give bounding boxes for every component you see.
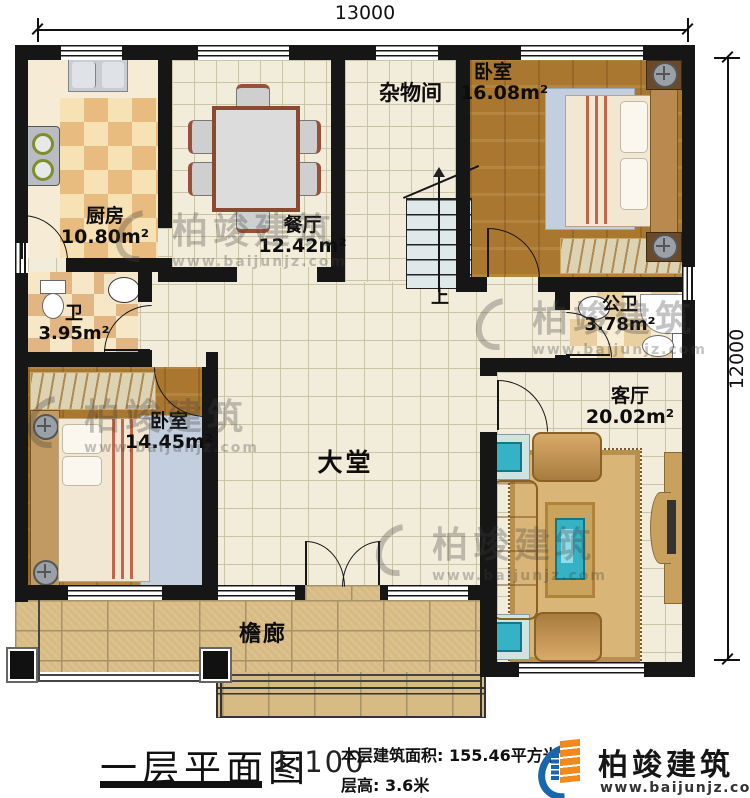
dimension-right-label: 12000 [726, 317, 748, 401]
pillow [62, 424, 102, 454]
company-logo-icon [540, 738, 592, 794]
floor-height-text: 层高: 3.6米 [341, 772, 429, 796]
window [519, 662, 644, 677]
wall [158, 267, 237, 282]
room-area: 3.95m² [18, 324, 130, 344]
porch-edge-bottom [38, 674, 480, 676]
wall [380, 585, 388, 600]
wall [480, 372, 497, 376]
lamp [652, 234, 678, 260]
wall [538, 277, 695, 292]
window [61, 45, 122, 60]
window [376, 45, 438, 60]
dimension-top-line [37, 29, 688, 31]
room-area: 3.78m² [558, 315, 682, 335]
room-area: 16.08m² [460, 83, 599, 104]
wall [480, 432, 497, 662]
bathroom-sink-basin [108, 277, 140, 303]
room-name: 公卫 [558, 295, 682, 315]
porch-column [203, 651, 228, 679]
wall [438, 45, 521, 60]
window [198, 45, 289, 60]
window [218, 585, 295, 600]
stove [24, 126, 60, 186]
window [521, 45, 643, 60]
lamp [652, 62, 678, 88]
room-label-kitchen: 厨房 10.80m² [40, 206, 170, 249]
room-label-bedroom-tr: 卧室 16.08m² [452, 62, 599, 105]
living-door-leaf [497, 380, 499, 430]
window [68, 585, 162, 600]
porch-column [10, 651, 34, 679]
wall [470, 277, 487, 292]
room-name: 大堂 [288, 449, 403, 477]
wall [206, 352, 218, 367]
entrance-steps [216, 672, 486, 718]
window [682, 267, 695, 300]
bedroom-tr-bed-stripes [586, 96, 610, 224]
room-label-living: 客厅 20.02m² [558, 386, 702, 429]
room-name: 卧室 [103, 411, 235, 432]
room-label-bedroom-bl: 卧室 14.45m² [103, 411, 235, 454]
wall [66, 258, 172, 272]
wall [138, 272, 152, 302]
pillow [620, 158, 648, 210]
sofa-armchair [532, 432, 602, 482]
drawing-title-underline [100, 781, 262, 788]
room-name: 檐廊 [213, 623, 313, 648]
sofa-main [492, 480, 538, 620]
room-name: 客厅 [558, 386, 702, 407]
porch-edge-bottom2 [38, 680, 480, 682]
room-label-bath: 卫 3.95m² [18, 304, 130, 344]
wall [295, 585, 305, 600]
company-name: 柏竣建筑 [598, 740, 734, 784]
room-label-porch: 檐廊 [213, 623, 313, 648]
room-name: 餐厅 [240, 215, 365, 236]
bedroom-tr-door-leaf [487, 228, 489, 277]
room-label-public-bath: 公卫 3.78m² [558, 295, 682, 335]
pillow [62, 456, 102, 486]
wall [158, 45, 172, 228]
room-area: 20.02m² [558, 407, 702, 428]
building-area-text: 本层建筑面积: 155.46平方米 [341, 742, 559, 766]
wall [480, 358, 695, 372]
kitchen-door-leaf [21, 215, 23, 259]
floor-plan-canvas: 13000 12000 [0, 0, 750, 798]
bath-door-leaf [104, 349, 150, 351]
room-area: 12.42m² [240, 236, 365, 257]
room-label-dining: 餐厅 12.42m² [240, 215, 365, 258]
dining-table [212, 106, 300, 212]
window [388, 585, 468, 600]
room-name: 卧室 [474, 62, 599, 83]
room-name: 卫 [18, 304, 130, 324]
porch-edge-left [38, 600, 40, 680]
bedroom-tr-headboard [650, 84, 678, 238]
wall [15, 585, 68, 600]
pillow [620, 101, 648, 153]
toilet-bowl [642, 335, 674, 357]
wall [15, 352, 152, 367]
bedroom-bl-wardrobe [30, 372, 156, 410]
stairs-up-label: 上 [420, 288, 460, 308]
lamp [33, 560, 59, 586]
dimension-top-label: 13000 [320, 2, 410, 24]
wall [15, 45, 28, 243]
room-name: 厨房 [40, 206, 170, 227]
public-bath-door-leaf [566, 354, 610, 356]
wall [317, 267, 345, 282]
stairs-direction-line [438, 176, 440, 292]
room-area: 14.45m² [103, 432, 235, 453]
tv [667, 500, 676, 554]
coffee-table [545, 502, 595, 598]
kitchen-sink [68, 58, 128, 92]
toilet [40, 280, 66, 294]
sofa-armchair [534, 612, 602, 662]
entrance-door-right-leaf [378, 541, 380, 585]
entrance-threshold [305, 585, 380, 600]
wall [644, 662, 695, 677]
room-label-hall: 大堂 [288, 449, 403, 477]
stairs-arrow-icon [433, 167, 445, 177]
room-area: 10.80m² [40, 227, 170, 248]
wall [162, 585, 218, 600]
wall [480, 662, 519, 677]
company-website: www.baijunjz.com [600, 780, 750, 796]
wall [682, 45, 695, 267]
bedroom-bl-door-leaf [202, 367, 204, 415]
wall [468, 585, 480, 600]
entrance-door-left-leaf [305, 541, 307, 585]
wall [682, 300, 695, 677]
lamp [33, 414, 59, 440]
